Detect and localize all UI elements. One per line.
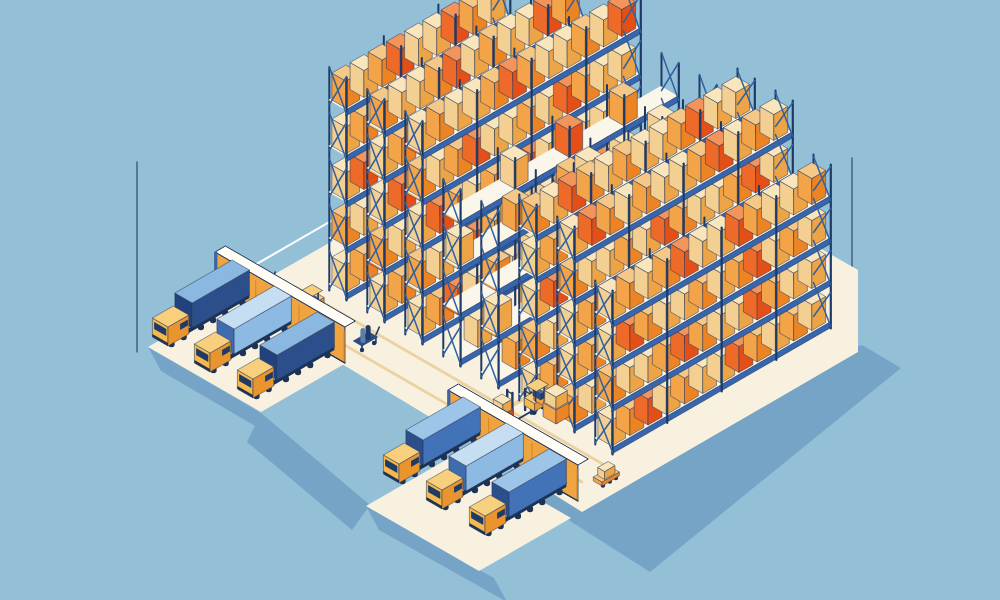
warehouse-illustration — [0, 0, 1000, 600]
scene-svg — [0, 0, 1000, 600]
box-stack — [543, 384, 569, 424]
